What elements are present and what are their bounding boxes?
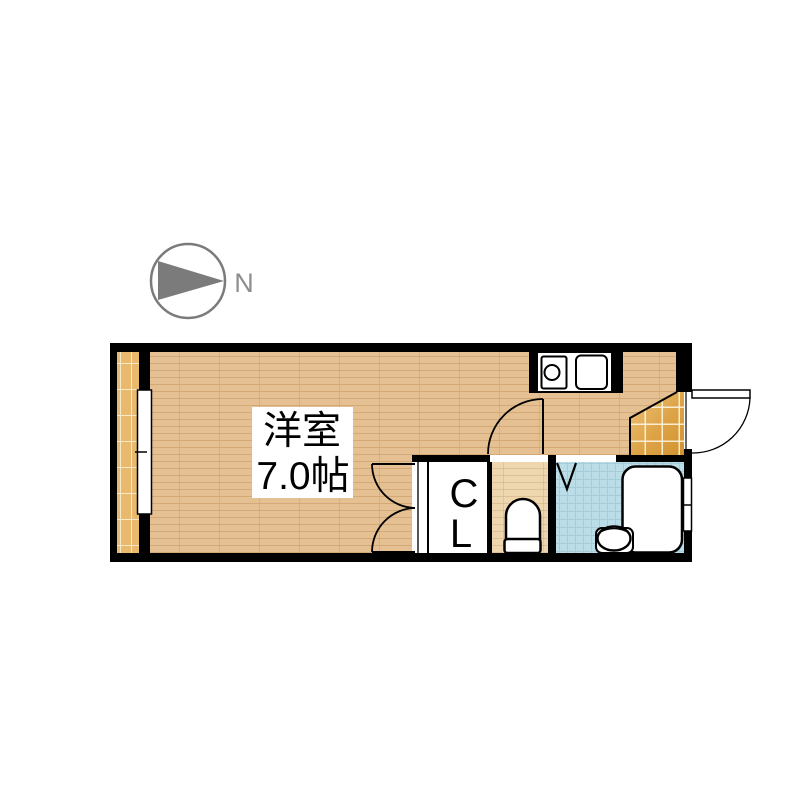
wall-right-upper: [684, 343, 692, 392]
wall-top: [110, 343, 692, 352]
sink-icon: [576, 356, 607, 390]
compass: N: [151, 244, 254, 318]
room-size-text: 7.0帖: [256, 455, 349, 498]
toilet-icon: [505, 499, 541, 553]
wall-entry-stub: [676, 352, 684, 392]
kitchen-counter: [537, 352, 612, 392]
entrance-door: [692, 390, 750, 453]
wall-closet-top: [412, 455, 490, 462]
north-label: N: [234, 268, 254, 298]
burner-icon: [545, 365, 560, 380]
floor-plan-image: 洋室 7.0帖 C L N: [0, 0, 800, 800]
wall-left-balcony: [110, 343, 117, 562]
toilet-door-opening: [490, 455, 548, 462]
wall-closet-toilet-divider: [487, 462, 492, 553]
closet-letter-l: L: [450, 512, 472, 556]
room-name-text: 洋室: [263, 410, 341, 453]
bathroom-window-icon: [684, 478, 692, 531]
entrance-door-opening: [684, 392, 692, 449]
bathroom-door-opening: [556, 455, 616, 462]
wall-bath-top: [616, 455, 692, 462]
floor-plan-page: 洋室 7.0帖 C L N: [0, 0, 800, 800]
wall-toilet-bath-divider: [548, 455, 556, 553]
closet-door-line-outer: [417, 462, 419, 553]
closet-door-line-inner: [427, 462, 429, 553]
room-label: 洋室 7.0帖: [252, 407, 353, 498]
balcony-window-icon: [135, 390, 152, 514]
wash-basin-icon: [596, 527, 633, 554]
wall-bottom: [110, 553, 692, 562]
closet-letter-c: C: [450, 472, 479, 516]
